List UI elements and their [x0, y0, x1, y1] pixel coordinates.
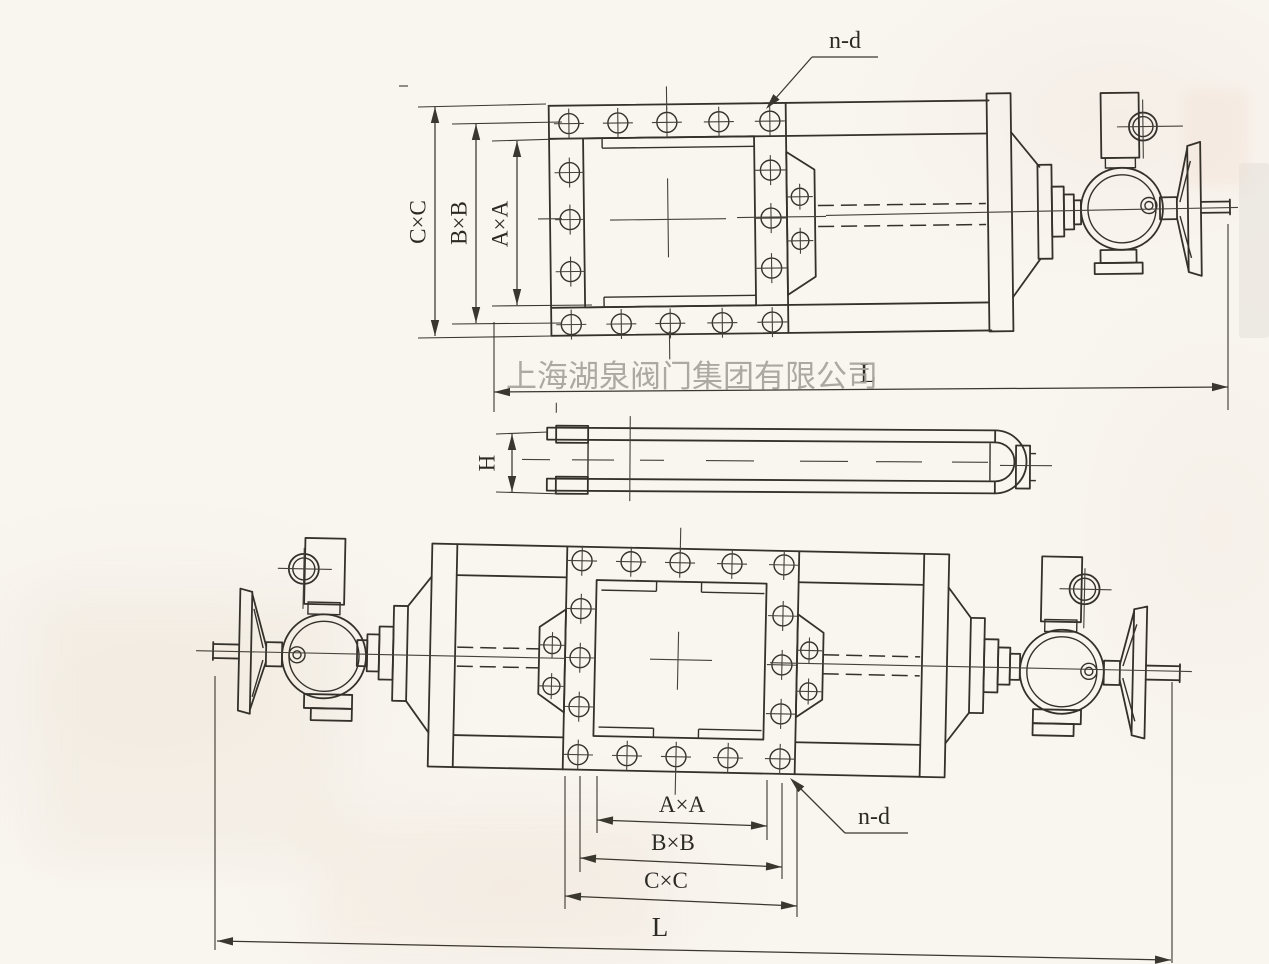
stem-bracket-right	[795, 614, 824, 718]
side-view	[522, 402, 1053, 503]
bolt-hole	[652, 107, 682, 137]
bolt-hole	[567, 545, 598, 576]
dimensions-bottom: A×A B×B C×C n-d L	[215, 676, 1172, 964]
bolt-hole	[765, 744, 796, 775]
bolt-hole	[768, 601, 799, 632]
bolt-hole	[565, 642, 596, 673]
label-bxb-top: B×B	[446, 201, 471, 245]
bolt-hole	[755, 106, 785, 136]
nd-leader-top: n-d	[763, 28, 878, 112]
bolt-hole	[563, 739, 594, 770]
label-bxb-bottom: B×B	[651, 830, 695, 855]
label-nd-bottom: n-d	[858, 804, 890, 830]
dim-l-bottom: L	[215, 676, 1172, 964]
right-actuator	[945, 554, 1182, 748]
watermark: 上海湖泉阀门集团有限公司	[506, 351, 878, 396]
stem-bracket-left	[538, 609, 566, 713]
bypass-valve	[1101, 92, 1184, 168]
valve-stems	[457, 647, 920, 676]
bolt-hole	[665, 547, 696, 578]
label-l-bottom: L	[652, 912, 669, 942]
label-axa-top: A×A	[487, 201, 512, 248]
bolt-hole	[713, 743, 744, 774]
bolt-hole	[555, 204, 585, 234]
bolt-hole	[566, 593, 597, 624]
dimension-h: H	[474, 432, 564, 494]
bolt-hole	[767, 650, 798, 681]
centerlines	[522, 402, 1053, 503]
bolt-hole	[704, 107, 734, 137]
bolt-hole	[538, 673, 565, 700]
bolt-hole	[554, 108, 584, 138]
label-h: H	[474, 455, 499, 472]
bolt-hole	[554, 157, 584, 187]
bolt-hole	[769, 550, 800, 581]
bolt-hole	[756, 203, 786, 233]
bolt-hole	[787, 228, 813, 254]
bolt-hole	[787, 184, 813, 210]
gate-plate-outline	[547, 426, 1036, 497]
bolt-hole	[612, 740, 643, 771]
gearbox	[1080, 167, 1163, 274]
bolt-hole	[755, 155, 785, 185]
yoke-assembly	[1011, 131, 1082, 297]
bolt-hole	[717, 549, 748, 580]
stem-bracket	[786, 152, 816, 295]
left-actuator	[211, 536, 432, 733]
bolt-hole	[756, 253, 786, 283]
bolt-hole	[661, 741, 692, 772]
bolt-hole	[795, 678, 822, 705]
bolt-hole	[564, 691, 595, 722]
label-cxc-bottom: C×C	[644, 868, 688, 893]
bolt-hole	[603, 108, 633, 138]
bolt-hole	[539, 632, 566, 659]
bolt-hole	[616, 546, 647, 577]
gate-opening	[583, 136, 756, 307]
gate-valve-engineering-drawing: C×C B×B A×A n-d L	[0, 0, 1269, 964]
top-view	[536, 79, 1239, 361]
bolt-hole	[796, 637, 823, 664]
label-axa-bottom: A×A	[659, 792, 706, 817]
bottom-view	[193, 518, 1194, 806]
bolt-hole	[766, 699, 797, 730]
label-cxc-top: C×C	[405, 200, 430, 244]
nd-leader-bottom: n-d	[787, 775, 908, 833]
bolt-hole	[555, 256, 585, 286]
label-nd-top: n-d	[829, 28, 861, 54]
centerlines	[193, 518, 1194, 806]
